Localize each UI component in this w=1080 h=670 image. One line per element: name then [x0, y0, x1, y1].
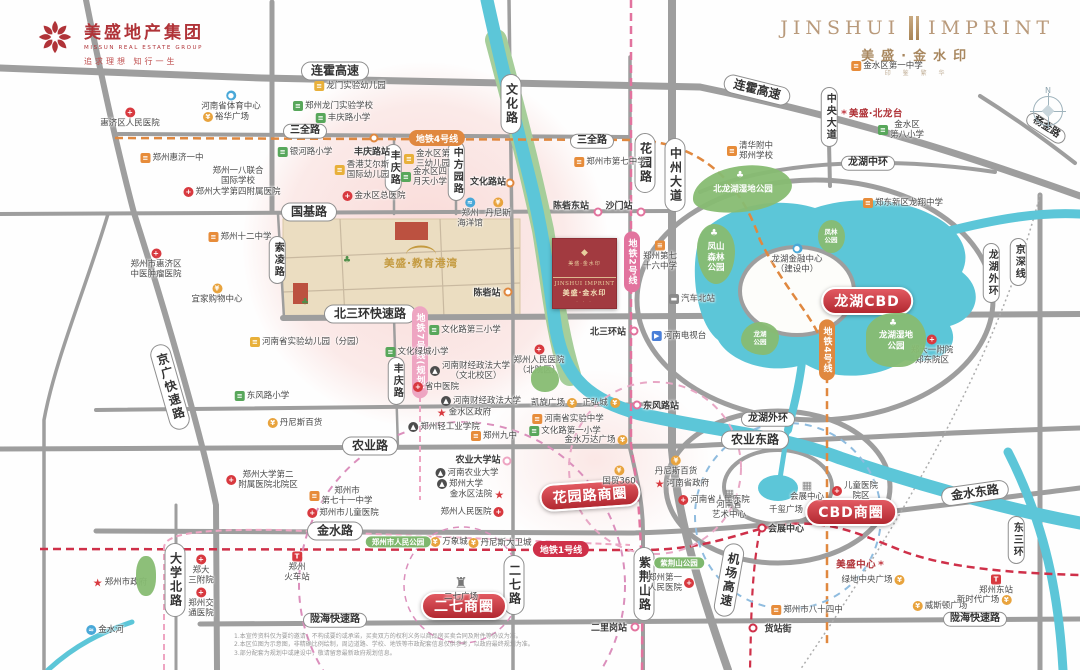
metro-station-icon [633, 401, 642, 410]
label-text: 宜家购物中心 [191, 294, 242, 304]
poi-school: ≡郑州市八十四中 [771, 605, 843, 615]
edu-brand-label: 美盛·教育港湾 [384, 256, 458, 271]
road-label: 连霍高速 [722, 73, 793, 108]
developer-name-en: MISSUN REAL ESTATE GROUP [84, 45, 204, 51]
metro-station-label: 北三环站 [590, 325, 626, 338]
map-canvas: 美盛·教育港湾 ◆ 美盛·金水印 JINSHUI IMPRINT 美盛·金水印 … [0, 0, 1080, 670]
metro-station-label: 文化路站 [470, 175, 506, 188]
label-text: 河南农业大学 [447, 468, 498, 478]
metro-station-icon [594, 208, 603, 217]
poi-mall: ¥丹尼斯 [485, 197, 511, 218]
poi-hospital: +郑州大学第四附属医院 [183, 187, 280, 197]
hospital-icon: + [196, 587, 206, 597]
logo-en-right: IMPRINT [928, 17, 1054, 39]
tree-icon: ♣ [889, 320, 897, 329]
metro-station-label: 陈砦东站 [553, 199, 589, 212]
road-label: 机场高速 [712, 542, 746, 619]
hospital-icon: + [226, 475, 236, 485]
label-text: 裕华广场 [215, 112, 249, 122]
label-text: 金水河 [98, 625, 124, 635]
label-text: 郑州市第七十一中学 [321, 486, 372, 506]
missun-group-logo: 美盛地产集团 MISSUN REAL ESTATE GROUP 追求理想 知行一… [36, 18, 204, 67]
label-text: 千玺广场 [769, 505, 803, 515]
label-text: 金水万达广场 [564, 435, 615, 445]
building-block [395, 222, 428, 240]
label-text: 清华附中郑州学校 [739, 141, 773, 161]
label-text: 郑州市儿童医院 [319, 508, 379, 518]
poi-text: 千玺广场 [769, 505, 803, 515]
poi-hospital: +惠济区人民医院 [100, 107, 160, 128]
metro-station-icon [637, 208, 646, 217]
label-text: 郑州十二中学 [220, 232, 271, 242]
poi-mall: ¥宜家购物中心 [191, 283, 242, 304]
hospital-icon: + [342, 191, 352, 201]
metro-station-icon [630, 327, 639, 336]
hospital-icon: + [684, 578, 694, 588]
road-label: 大学北路 [165, 543, 186, 617]
poi-hospital: +金水区总医院 [342, 191, 405, 201]
road-label: 索凌路 [269, 236, 286, 284]
road-label: 三全路 [283, 124, 327, 139]
hospital-icon: + [183, 187, 193, 197]
metro-station-icon [503, 457, 512, 466]
poi-hospital: +郑州交通医院 [188, 587, 214, 618]
label-text: 丹尼斯百货 [280, 418, 323, 428]
metro-station-icon [370, 134, 379, 143]
project-top-label: 美盛·金水印 [568, 260, 601, 267]
poi-university: ▲河南农业大学 [435, 468, 498, 478]
poi-school: ≡郑州十二中学 [208, 232, 271, 242]
jinshui-imprint-logo: JINSHUI IMPRINT 美盛·金水印 印 鉴 繁 华 [780, 16, 1054, 77]
label-text: 郑州大学第四附属医院 [195, 187, 280, 197]
label-text: 郑州火车站 [284, 562, 310, 582]
university-icon: ▲ [441, 396, 451, 406]
label-text: 绿地中央广场 [841, 575, 892, 585]
hospital-icon: + [125, 107, 135, 117]
label-text: 万象城 [442, 537, 468, 547]
water-icon: ≈ [86, 625, 96, 635]
poi-hospital: +郑大三附院 [188, 554, 214, 585]
road-label: 丰庆路 [388, 357, 405, 405]
metro-station-icon [504, 288, 513, 297]
hospital-icon: + [678, 495, 688, 505]
landmark-icon: ▦ [724, 488, 734, 499]
train-icon: T [991, 574, 1001, 584]
label-text: 凯旋广场 [531, 398, 565, 408]
kindergarten-icon: ≡ [335, 165, 345, 175]
label-text: 郑州市惠济区中医肿瘤医院 [130, 259, 181, 279]
school-icon: ≡ [309, 491, 319, 501]
poi-star: ★金水区政府 [437, 408, 491, 419]
label-text: 河南省艺术中心 [712, 500, 746, 520]
poi-mall: ¥凯旋广场 [531, 398, 577, 408]
poi-school: ≡郑州第七十六中学 [643, 240, 677, 271]
poi-primary: ≡文化绿城小学 [385, 347, 448, 357]
park-label: 北龙湖湿地公园 [713, 185, 773, 196]
label-text: 丰庆路小学 [328, 113, 371, 123]
flower-icon: * [841, 108, 847, 119]
university-icon: ▲ [437, 479, 447, 489]
label-text: 儿童医院院区 [844, 481, 878, 501]
poi-kindergarten: ≡河南省实验幼儿园（分园） [250, 337, 364, 347]
label-text: 郑州市第七中学 [586, 157, 646, 167]
poi-primary: ≡东风路小学 [235, 391, 290, 401]
metro-station-label: 货站街 [764, 622, 791, 635]
poi-water: ≈郑州海洋馆 [457, 197, 483, 228]
mall-icon: ¥ [895, 575, 905, 585]
label-text: 汽车北站 [681, 294, 715, 304]
flower-icon: * [878, 559, 884, 570]
poi-star: ★金水区法院 [450, 490, 504, 501]
university-icon: ▲ [408, 422, 418, 432]
label-text: 会展中心 [790, 492, 824, 502]
poi-mall: ¥正弘城 [582, 398, 620, 408]
poi-landmark: ▦河南省艺术中心 [712, 488, 746, 520]
road-label: 文化路 [501, 74, 522, 134]
label-text: 正弘城 [582, 398, 608, 408]
business-district-badge: CBD商圈 [805, 498, 897, 526]
mall-icon: ¥ [618, 435, 628, 445]
poi-school: ≡郑东新区龙翔中学 [863, 198, 943, 208]
label-text: 河南省政府 [667, 479, 710, 489]
park-label: 紫荆山公园 [653, 556, 705, 569]
road-label: 北三环快速路 [324, 305, 416, 324]
school-icon: ≡ [208, 232, 218, 242]
mall-icon: ¥ [468, 538, 478, 548]
road-label: 东三环 [1008, 516, 1025, 564]
label-text: 金水区法院 [450, 490, 493, 500]
metro-station-icon [631, 623, 640, 632]
hospital-icon: + [413, 382, 423, 392]
label-text: 郑州人民医院 [440, 507, 491, 517]
poi-school: ≡河南省实验中学 [532, 414, 604, 424]
train-icon: T [292, 551, 302, 561]
hospital-icon: + [927, 334, 937, 344]
label-text: 郑州大学 [449, 479, 483, 489]
poi-hospital: +儿童医院院区 [832, 481, 878, 501]
school-icon: ≡ [574, 157, 584, 167]
metro-line-badge: 地铁4号线 [819, 319, 835, 380]
label-text: 美盛·北龙台 [849, 108, 903, 119]
road-label: 中州大道 [665, 138, 686, 212]
label-text: 郑州一八联合国际学校 [212, 166, 263, 186]
pagoda-icon: ♜ [454, 576, 467, 591]
label-text: 郑州大学第二附属医院北院区 [238, 470, 298, 490]
poi-kindergarten: ≡香港艾尔斯国际幼儿园 [335, 160, 390, 180]
education-area-brand: 美盛·教育港湾 [384, 246, 458, 271]
mall-icon: ¥ [430, 537, 440, 547]
label-text: 丹尼斯大卫城 [480, 538, 531, 548]
park-label: 凤山森林公园 [707, 242, 724, 274]
logo-cn: 美盛·金水印 [780, 45, 1054, 64]
label-text: 郑东新区龙翔中学 [875, 198, 943, 208]
school-icon: ≡ [771, 605, 781, 615]
poi-mall: ¥丹尼斯百货 [268, 418, 323, 428]
road-label: 龙湖中环 [841, 156, 895, 171]
project-sub-label: · · · [576, 299, 592, 304]
primary-icon: ≡ [385, 347, 395, 357]
poi-train: T郑州火车站 [284, 551, 310, 582]
primary-icon: ≡ [278, 147, 288, 157]
developer-slogan: 追求理想 知行一生 [84, 56, 204, 67]
label-text: 新时代广场 [957, 595, 1000, 605]
label-text: 东风路小学 [247, 391, 290, 401]
metro-station-label: 丰庆路站 [354, 145, 390, 158]
star-icon: ★ [494, 490, 504, 501]
label-text: 二七广场 [444, 592, 478, 602]
tree-icon: ♣ [710, 230, 718, 239]
mall-icon: ¥ [567, 398, 577, 408]
road-label: 中央大道 [821, 87, 838, 147]
label-text: 香港艾尔斯国际幼儿园 [347, 160, 390, 180]
metro-station-label: 农业大学站 [455, 453, 500, 466]
kindergarten-icon: ≡ [250, 337, 260, 347]
metro-station-label: 二里岗站 [591, 621, 627, 634]
compass: N [1028, 86, 1068, 126]
tree-icon: ♣ [736, 172, 744, 181]
road-label: 陇海快速路 [943, 612, 1007, 627]
poi-hospital: +郑州市惠济区中医肿瘤医院 [130, 248, 181, 279]
mall-icon: ¥ [1001, 595, 1011, 605]
star-icon: ★ [655, 479, 665, 490]
star-icon: ★ [437, 408, 447, 419]
school-icon: ≡ [140, 153, 150, 163]
poi-text: 郑州一八联合国际学校 [212, 166, 263, 186]
poi-primary: ≡郑州龙门实验学校 [293, 101, 373, 111]
poi-landmark: ▦会展中心 [790, 480, 824, 502]
label-text: 丹尼斯百货 [655, 466, 698, 476]
poi-university: ▲郑州轻工业学院 [408, 422, 480, 432]
hospital-icon: + [196, 554, 206, 564]
road-label: 京广快速路 [148, 342, 192, 432]
label-text: 银河路小学 [290, 147, 333, 157]
poi-university: ▲河南财经政法大学（文北校区） [430, 361, 510, 381]
metro-station-icon [506, 179, 515, 188]
poi-flower: *美盛·北龙台 [841, 108, 903, 119]
park-label: 龙湖湿地公园 [879, 330, 913, 351]
label-text: 郑州市八十四中 [783, 605, 843, 615]
park-label: 郑州市人民公园 [365, 535, 432, 548]
road-label: 陇海快速路 [303, 613, 367, 628]
label-text: 河南电视台 [664, 331, 707, 341]
road-label: 龙湖外环 [741, 412, 795, 427]
info-icon: ● [792, 243, 802, 253]
poi-hospital: +省中医院 [413, 382, 459, 392]
label-text: 文化绿城小学 [397, 347, 448, 357]
star-icon: ★ [93, 578, 103, 589]
park-label: 凤林公园 [825, 228, 838, 244]
hospital-icon: + [832, 486, 842, 496]
mall-icon: ¥ [671, 455, 681, 465]
poi-school: ≡郑州惠济一中 [140, 153, 203, 163]
poi-car: ▬汽车北站 [669, 294, 715, 304]
poi-hospital: +郑州市儿童医院 [307, 508, 379, 518]
school-icon: ≡ [727, 146, 737, 156]
label-text: 河南省体育中心 [201, 101, 261, 111]
poi-info: ●河南省体育中心 [201, 90, 261, 111]
metro-station-label: 陈砦站 [473, 286, 500, 299]
kindergarten-icon: ≡ [314, 81, 324, 91]
label-text: 国贸360 [602, 476, 635, 486]
primary-icon: ≡ [878, 125, 888, 135]
info-icon: ● [226, 90, 236, 100]
hospital-icon: + [534, 344, 544, 354]
mall-icon: ¥ [610, 398, 620, 408]
poi-mall: ¥丹尼斯百货 [655, 455, 698, 476]
business-district-badge: 龙湖CBD [821, 287, 913, 315]
poi-water: ≈金水河 [86, 625, 124, 635]
road-label: 中方园路 [448, 141, 465, 201]
label-text: 郑州龙门实验学校 [305, 101, 373, 111]
label-text: 龙门实验幼儿园 [326, 81, 386, 91]
university-icon: ▲ [435, 468, 445, 478]
poi-school: ≡清华附中郑州学校 [727, 141, 773, 161]
project-crest-icon: ◆ [581, 249, 588, 258]
road-label: 国基路 [281, 203, 337, 222]
poi-mall: ¥万象城 [430, 537, 468, 547]
primary-icon: ≡ [235, 391, 245, 401]
label-text: 丹尼斯 [485, 208, 511, 218]
poi-info: ●龙湖金融中心（建设中） [771, 243, 822, 274]
metro-station-icon [749, 624, 758, 633]
label-text: 文化路第三小学 [441, 325, 501, 335]
logo-en-left: JINSHUI [780, 17, 900, 39]
metro-line-badge: 地铁2号线 [624, 231, 640, 292]
logo-tagline: 印 鉴 繁 华 [780, 68, 1054, 77]
park-area [531, 366, 559, 392]
poi-hospital: +郑州大学第二附属医院北院区 [226, 470, 298, 490]
mall-icon: ¥ [493, 197, 503, 207]
metro-line-badge: 地铁1号线 [533, 541, 589, 557]
poi-tv: ▶河南电视台 [652, 331, 707, 341]
disclaimer-text: 1.本宣传资料仅为要约邀请，不构成要约或承诺，买卖双方的权利义务以商品房买卖合同… [234, 633, 534, 658]
label-text: 郑州惠济一中 [152, 153, 203, 163]
road-label: 龙湖外环 [983, 243, 1000, 303]
poi-hospital: +郑州第一人民医院 [648, 573, 694, 593]
label-text: 河南财经政法大学 [453, 396, 521, 406]
metro-line-badge: 地铁4号线 [409, 130, 465, 146]
edu-brand-arc-icon [406, 246, 436, 255]
project-name-en: JINSHUI IMPRINT [554, 281, 614, 287]
primary-icon: ≡ [293, 101, 303, 111]
tree-icon: ♣ [343, 257, 351, 266]
poi-mall: ¥国贸360 [602, 465, 635, 486]
road-label: 金水东路 [940, 479, 1010, 507]
tv-icon: ▶ [652, 331, 662, 341]
road-label: 三全路 [570, 134, 614, 149]
school-icon: ≡ [532, 414, 542, 424]
mall-icon: ¥ [913, 601, 923, 611]
poi-mall: ¥裕华广场 [203, 112, 249, 122]
mall-icon: ¥ [212, 283, 222, 293]
park-area [136, 556, 156, 596]
label-text: 惠济区人民医院 [100, 118, 160, 128]
poi-school: ≡郑州九中 [471, 431, 517, 441]
label-text: 金水区四月天小学 [413, 167, 447, 187]
metro-station-label: 东风路站 [643, 399, 679, 412]
poi-kindergarten: ≡龙门实验幼儿园 [314, 81, 386, 91]
poi-hospital: +郑州人民医院 [440, 507, 503, 517]
label-text: 河南省实验中学 [544, 414, 604, 424]
poi-pagoda: ♜二七广场 [444, 576, 478, 602]
label-text: 郑州交通医院 [188, 598, 214, 618]
poi-primary: ≡文化路第三小学 [429, 325, 501, 335]
developer-name: 美盛地产集团 [84, 18, 204, 43]
road-label: 农业路 [342, 437, 398, 456]
car-icon: ▬ [669, 294, 679, 304]
imprint-bars-icon [909, 16, 919, 40]
label-text: 省中医院 [425, 382, 459, 392]
poi-mall: ¥丹尼斯大卫城 [468, 538, 531, 548]
compass-rose-icon [1033, 96, 1063, 126]
hospital-icon: + [307, 508, 317, 518]
mall-icon: ¥ [614, 465, 624, 475]
poi-flower: *美盛中心 [836, 559, 884, 570]
metro-station-label: 沙门站 [605, 199, 632, 212]
poi-star: ★河南省政府 [655, 479, 709, 490]
tree-icon: ♣ [301, 299, 309, 308]
poi-school: ≡郑州市第七十一中学 [309, 486, 372, 506]
school-icon: ≡ [471, 431, 481, 441]
poi-university: ▲郑州大学 [437, 479, 483, 489]
road-label: 连霍高速 [301, 62, 369, 81]
label-text: 金水区第八小学 [890, 120, 924, 140]
hospital-icon: + [151, 248, 161, 258]
primary-icon: ≡ [401, 172, 411, 182]
label-text: 龙湖金融中心（建设中） [771, 254, 822, 274]
water-icon: ≈ [465, 197, 475, 207]
road-label: 京深线 [1010, 238, 1027, 286]
label-text: 郑州第一人民医院 [648, 573, 682, 593]
road-label: 金水路 [307, 522, 363, 541]
missun-flower-icon [36, 18, 74, 56]
label-text: 金水区总医院 [354, 191, 405, 201]
school-icon: ≡ [863, 198, 873, 208]
label-text: 美盛中心 [836, 559, 876, 570]
poi-train: T郑州东站 [979, 574, 1013, 595]
label-text: 郑州第七十六中学 [643, 251, 677, 271]
project-marker: ◆ 美盛·金水印 JINSHUI IMPRINT 美盛·金水印 · · · [552, 238, 617, 309]
school-icon: ≡ [655, 240, 665, 250]
kindergarten-icon: ≡ [404, 154, 414, 164]
poi-mall: ¥绿地中央广场 [841, 575, 904, 585]
label-text: 河南省实验幼儿园（分园） [262, 337, 364, 347]
primary-icon: ≡ [429, 325, 439, 335]
label-text: 河南财经政法大学（文北校区） [442, 361, 510, 381]
landmark-icon: ▦ [802, 480, 812, 491]
university-icon: ▲ [430, 366, 440, 376]
poi-primary: ≡金水区第八小学 [878, 120, 924, 140]
park-label: 龙湖公园 [754, 330, 767, 346]
road-label: 农业东路 [721, 431, 789, 450]
poi-university: ▲河南财经政法大学 [441, 396, 521, 406]
primary-icon: ≡ [316, 113, 326, 123]
metro-station-icon [758, 524, 767, 533]
poi-mall: ¥金水万达广场 [564, 435, 627, 445]
hospital-icon: + [494, 507, 504, 517]
label-text: 郑州海洋馆 [457, 208, 483, 228]
label-text: 郑大三附院 [188, 565, 214, 585]
mall-icon: ¥ [203, 112, 213, 122]
project-name-cn: 美盛·金水印 [563, 288, 607, 298]
poi-primary: ≡银河路小学 [278, 147, 333, 157]
poi-school: ≡郑州市第七中学 [574, 157, 646, 167]
metro-station-label: 会展中心 [768, 522, 804, 535]
label-text: 郑州东站 [979, 585, 1013, 595]
poi-mall: ¥新时代广场 [957, 595, 1012, 605]
mall-icon: ¥ [268, 418, 278, 428]
poi-primary: ≡丰庆路小学 [316, 113, 371, 123]
